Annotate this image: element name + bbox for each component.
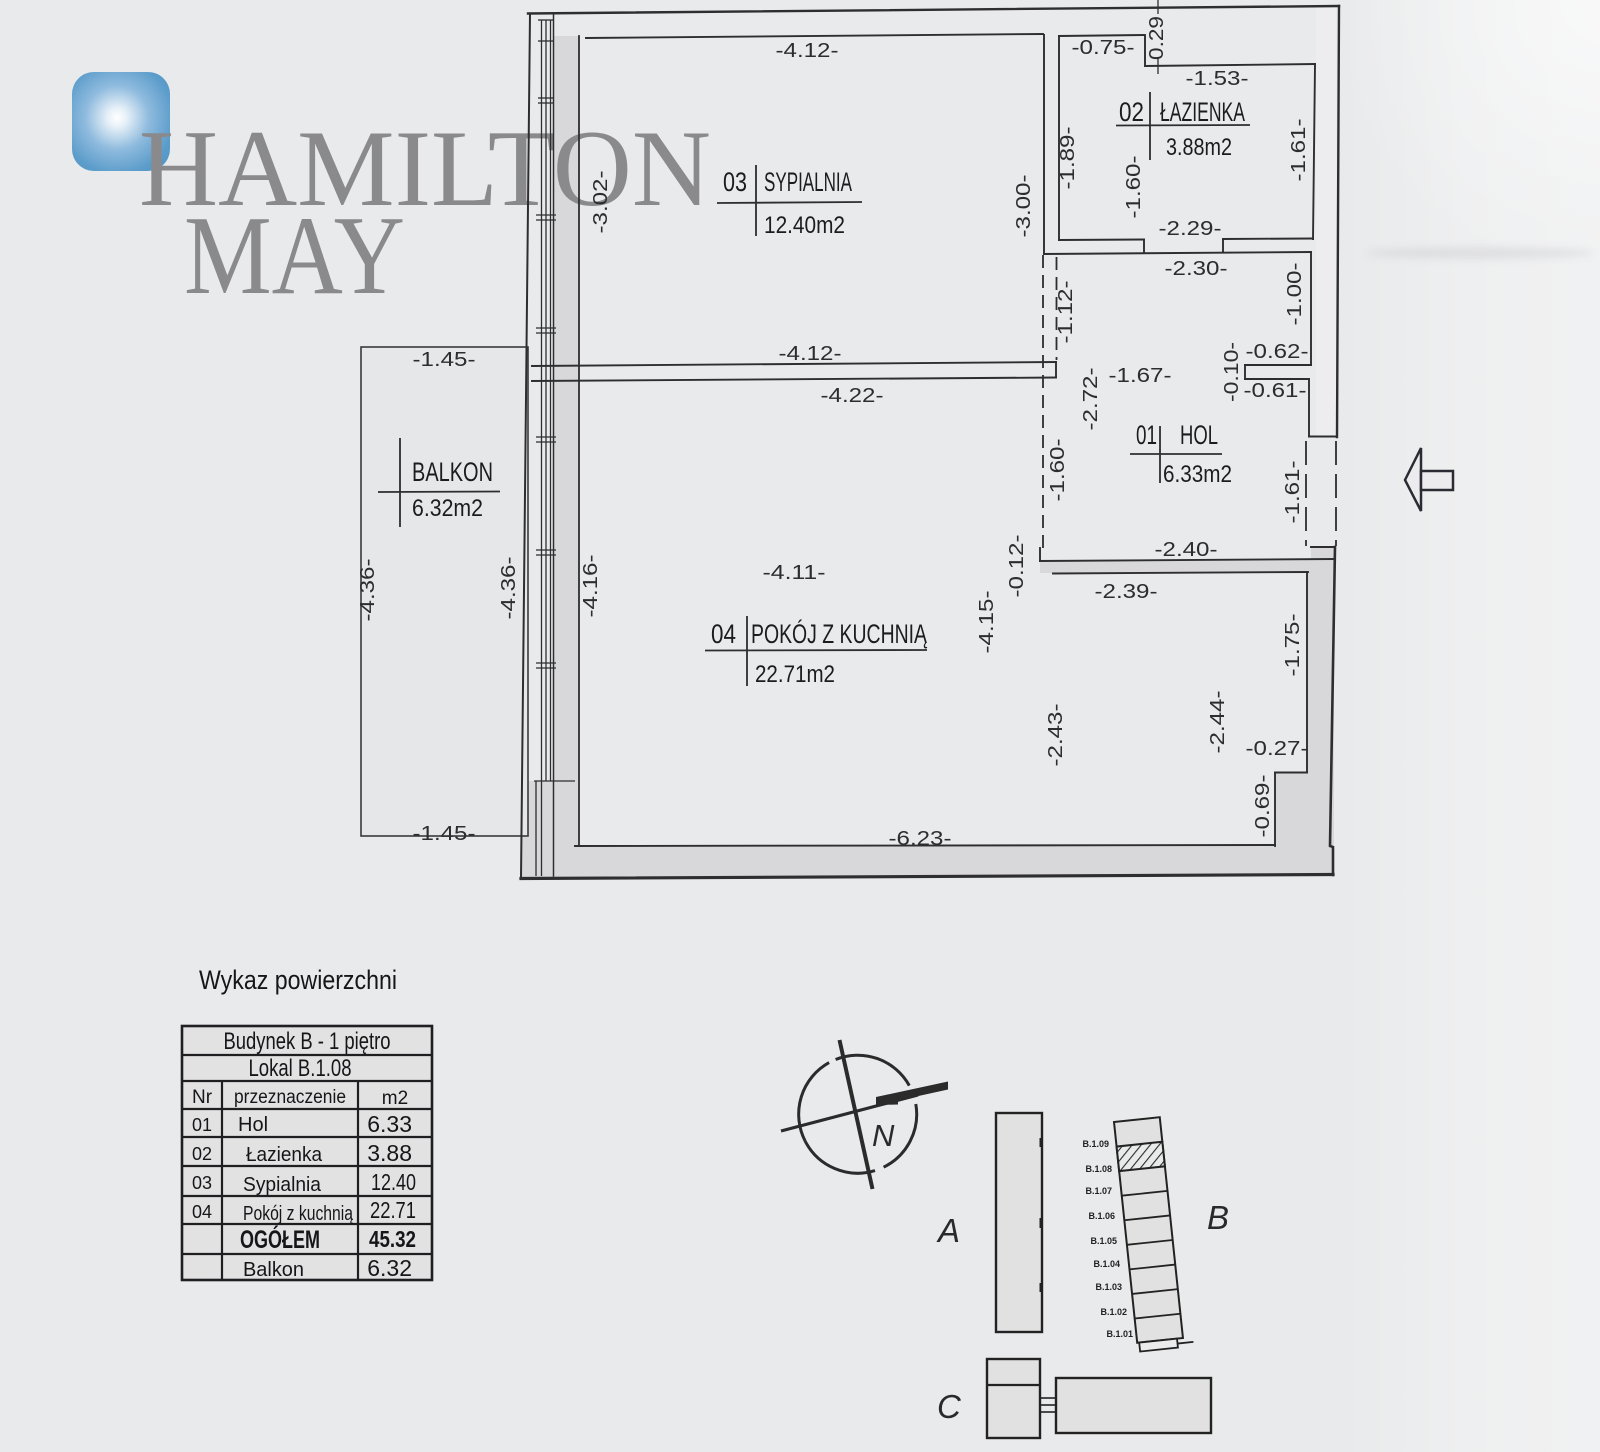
svg-text:B.1.02: B.1.02 bbox=[1100, 1307, 1127, 1317]
svg-text:22.71: 22.71 bbox=[370, 1197, 416, 1223]
svg-text:B.1.06: B.1.06 bbox=[1088, 1211, 1115, 1221]
svg-text:B: B bbox=[1207, 1199, 1229, 1236]
svg-text:6.32m2: 6.32m2 bbox=[412, 495, 483, 522]
svg-text:-4.12-: -4.12- bbox=[776, 40, 839, 62]
svg-text:-2.29-: -2.29- bbox=[1159, 218, 1222, 240]
svg-text:12.40m2: 12.40m2 bbox=[764, 212, 845, 239]
svg-text:-1.61-: -1.61- bbox=[1288, 119, 1310, 182]
svg-text:04: 04 bbox=[711, 619, 736, 649]
svg-text:przeznaczenie: przeznaczenie bbox=[234, 1087, 346, 1108]
svg-text:-1.67-: -1.67- bbox=[1109, 365, 1172, 387]
svg-text:6.32: 6.32 bbox=[367, 1255, 412, 1281]
svg-text:02: 02 bbox=[192, 1144, 212, 1164]
svg-text:BALKON: BALKON bbox=[412, 457, 493, 487]
svg-text:3.88m2: 3.88m2 bbox=[1166, 134, 1232, 161]
svg-text:-1.53-: -1.53- bbox=[1186, 68, 1249, 90]
svg-text:Hol: Hol bbox=[238, 1114, 268, 1136]
svg-text:Łazienka: Łazienka bbox=[246, 1144, 323, 1166]
svg-text:SYPIALNIA: SYPIALNIA bbox=[764, 167, 852, 197]
svg-text:6.33: 6.33 bbox=[367, 1111, 412, 1137]
svg-text:C: C bbox=[937, 1388, 962, 1425]
svg-text:-1.89-: -1.89- bbox=[1057, 127, 1079, 190]
svg-text:6.33m2: 6.33m2 bbox=[1163, 461, 1232, 488]
svg-text:04: 04 bbox=[192, 1202, 212, 1222]
svg-text:0.29: 0.29 bbox=[1146, 16, 1168, 60]
svg-text:45.32: 45.32 bbox=[369, 1226, 416, 1252]
svg-text:B.1.01: B.1.01 bbox=[1106, 1329, 1133, 1339]
svg-text:-0.62-: -0.62- bbox=[1246, 341, 1309, 363]
svg-text:-6.23-: -6.23- bbox=[889, 828, 952, 850]
svg-text:-4.15-: -4.15- bbox=[976, 591, 998, 654]
svg-text:-2.72-: -2.72- bbox=[1080, 368, 1102, 431]
svg-text:-4.36-: -4.36- bbox=[357, 559, 379, 622]
svg-text:B.1.08: B.1.08 bbox=[1085, 1164, 1112, 1174]
svg-text:-2.43-: -2.43- bbox=[1045, 704, 1067, 767]
svg-text:-4.36-: -4.36- bbox=[498, 557, 520, 620]
svg-text:01: 01 bbox=[192, 1115, 212, 1135]
svg-text:B.1.03: B.1.03 bbox=[1095, 1282, 1122, 1292]
svg-text:-4.12-: -4.12- bbox=[779, 343, 842, 365]
svg-text:HOL: HOL bbox=[1180, 420, 1218, 450]
svg-text:m2: m2 bbox=[382, 1088, 408, 1109]
svg-text:POKÓJ Z KUCHNIĄ: POKÓJ Z KUCHNIĄ bbox=[751, 618, 928, 649]
svg-text:-1.00-: -1.00- bbox=[1284, 263, 1306, 326]
svg-text:Sypialnia: Sypialnia bbox=[243, 1174, 322, 1196]
svg-text:-1.60-: -1.60- bbox=[1123, 156, 1145, 219]
svg-text:-2.40-: -2.40- bbox=[1155, 539, 1218, 561]
svg-text:-2.30-: -2.30- bbox=[1165, 258, 1228, 280]
svg-text:Nr: Nr bbox=[192, 1087, 213, 1108]
svg-text:-3.00-: -3.00- bbox=[1013, 175, 1035, 238]
svg-text:ŁAZIENKA: ŁAZIENKA bbox=[1160, 97, 1245, 127]
svg-text:-0.69-: -0.69- bbox=[1252, 775, 1274, 838]
svg-text:-3.02-: -3.02- bbox=[590, 171, 612, 234]
svg-text:MAY: MAY bbox=[184, 194, 405, 318]
svg-text:Pokój z kuchnią: Pokój z kuchnią bbox=[243, 1203, 354, 1225]
svg-text:-0.75-: -0.75- bbox=[1072, 37, 1135, 59]
svg-text:-0.61-: -0.61- bbox=[1244, 380, 1307, 402]
svg-text:3.88: 3.88 bbox=[367, 1140, 412, 1166]
svg-text:-2.44-: -2.44- bbox=[1207, 691, 1229, 754]
svg-text:-1.12-: -1.12- bbox=[1055, 281, 1077, 344]
svg-text:-1.60-: -1.60- bbox=[1047, 439, 1069, 502]
svg-text:01: 01 bbox=[1136, 420, 1157, 450]
svg-text:-4.11-: -4.11- bbox=[763, 562, 826, 584]
svg-text:12.40: 12.40 bbox=[371, 1169, 416, 1195]
svg-text:N: N bbox=[872, 1118, 895, 1153]
svg-text:Budynek B - 1 piętro: Budynek B - 1 piętro bbox=[224, 1028, 391, 1055]
svg-text:-0.27-: -0.27- bbox=[1246, 738, 1309, 760]
svg-text:02: 02 bbox=[1119, 97, 1144, 127]
svg-text:-1.61-: -1.61- bbox=[1282, 461, 1304, 524]
svg-text:A: A bbox=[936, 1212, 960, 1249]
svg-text:03: 03 bbox=[723, 167, 747, 197]
svg-text:B.1.05: B.1.05 bbox=[1090, 1236, 1117, 1246]
svg-text:B.1.09: B.1.09 bbox=[1082, 1139, 1109, 1149]
svg-text:Lokal B.1.08: Lokal B.1.08 bbox=[249, 1055, 352, 1082]
svg-text:-0.10-: -0.10- bbox=[1221, 342, 1243, 402]
svg-text:-4.16-: -4.16- bbox=[580, 555, 602, 618]
svg-text:-1.75-: -1.75- bbox=[1282, 614, 1304, 677]
svg-text:Balkon: Balkon bbox=[243, 1259, 304, 1281]
svg-text:Wykaz powierzchni: Wykaz powierzchni bbox=[199, 965, 397, 995]
svg-text:B.1.04: B.1.04 bbox=[1093, 1259, 1120, 1269]
svg-text:03: 03 bbox=[192, 1173, 212, 1193]
svg-text:-0.12-: -0.12- bbox=[1006, 535, 1028, 598]
svg-text:22.71m2: 22.71m2 bbox=[755, 661, 835, 688]
svg-text:-1.45-: -1.45- bbox=[413, 349, 476, 371]
svg-text:OGÓŁEM: OGÓŁEM bbox=[240, 1224, 320, 1254]
svg-text:-4.22-: -4.22- bbox=[821, 385, 884, 407]
svg-text:-2.39-: -2.39- bbox=[1095, 581, 1158, 603]
svg-text:-1.45-: -1.45- bbox=[413, 823, 476, 845]
svg-text:B.1.07: B.1.07 bbox=[1085, 1186, 1112, 1196]
